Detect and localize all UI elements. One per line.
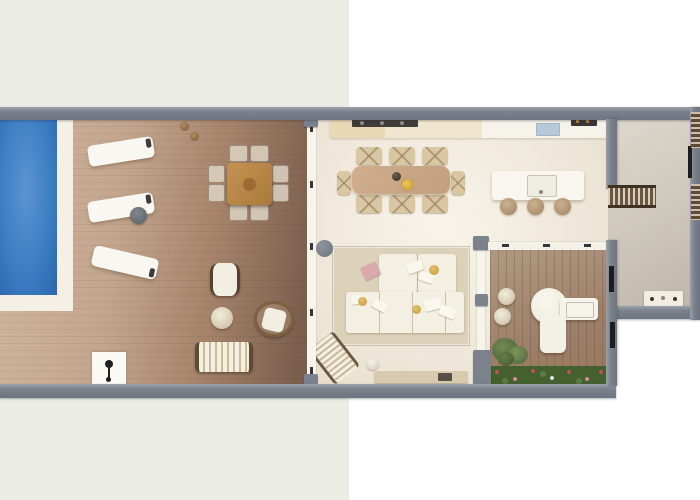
flower-hedge: [489, 366, 610, 386]
gold-pillow: [358, 297, 367, 306]
outdoor-chair: [250, 145, 269, 162]
island-faucet: [539, 190, 543, 194]
plant-pot: [190, 132, 199, 141]
glazing-tick: [310, 309, 313, 316]
veranda-desk-return: [560, 298, 598, 320]
appliance-dot: [576, 120, 579, 123]
hallway-console: [644, 291, 683, 307]
lounger-headrest: [145, 138, 151, 148]
terrace-armchair: [210, 263, 240, 296]
outdoor-chair: [208, 184, 225, 202]
swimming-pool: [0, 119, 57, 295]
slatted-rack: [608, 185, 656, 208]
media-console: [374, 371, 468, 383]
yellow-flowers: [402, 179, 413, 190]
gold-pillow: [412, 305, 421, 314]
wall-hallway-bottom: [612, 306, 700, 319]
bar-stool: [527, 198, 544, 215]
console-item: [673, 297, 677, 301]
lounger-headrest: [145, 194, 151, 204]
wicker-chair: [254, 301, 294, 337]
gold-pillow: [429, 265, 439, 275]
outdoor-chair: [208, 165, 225, 183]
plant-pot: [180, 122, 189, 131]
wall-shelf-niche: [691, 112, 700, 148]
glazing-tick: [310, 243, 313, 250]
dining-chair: [389, 147, 415, 165]
glazing-tick: [502, 244, 509, 247]
glazing-tick: [310, 367, 313, 374]
sofa-seam: [379, 292, 380, 333]
dining-chair: [422, 147, 448, 165]
hallway-floor: [608, 119, 690, 310]
table-centerpiece: [243, 178, 256, 191]
wicker-chair-cushion: [261, 307, 288, 334]
cooktop: [352, 119, 418, 127]
veranda-pouf: [498, 288, 515, 305]
side-table: [366, 357, 379, 370]
glazing-tick: [543, 244, 550, 247]
dining-chair: [356, 147, 382, 165]
glass-wall-terrace: [307, 119, 316, 384]
outdoor-chair: [250, 204, 269, 221]
veranda-window-band: [488, 242, 608, 250]
door-leaf: [610, 322, 615, 348]
wall-shelf-niche: [691, 184, 700, 220]
dining-chair: [389, 195, 415, 213]
outdoor-chair: [272, 165, 289, 183]
shower-icon-foot: [106, 377, 111, 382]
wall-post: [475, 294, 488, 306]
wall-post: [304, 119, 318, 127]
outdoor-shower-pad: [92, 352, 126, 385]
wall-post: [473, 350, 491, 385]
burner-dot: [360, 121, 364, 125]
structural-column: [316, 240, 333, 257]
shrub: [498, 352, 514, 366]
table-vase: [392, 172, 401, 181]
wall-veranda-right: [606, 240, 617, 386]
dining-chair: [356, 195, 382, 213]
striped-daybed: [195, 342, 253, 372]
bar-stool: [554, 198, 571, 215]
veranda-pouf: [494, 308, 511, 325]
dining-chair: [337, 171, 351, 195]
door-leaf: [609, 266, 614, 292]
console-item: [650, 297, 654, 301]
bar-stool: [500, 198, 517, 215]
wall-bottom: [0, 384, 616, 398]
console-equipment: [438, 373, 452, 381]
door-leaf: [688, 146, 692, 178]
wall-post: [473, 236, 489, 250]
outdoor-dining-table: [227, 163, 272, 205]
drinks-table: [130, 207, 147, 224]
terrace-pouf: [211, 307, 233, 329]
floor-plan-canvas: [0, 0, 700, 500]
glazing-tick: [584, 244, 591, 247]
lounger-headrest: [148, 268, 155, 278]
desk-seat: [566, 302, 594, 318]
outdoor-chair: [229, 145, 248, 162]
console-item: [661, 296, 665, 300]
counter-sink: [536, 123, 560, 136]
burner-dot: [400, 121, 404, 125]
appliance-dot: [586, 120, 589, 123]
outdoor-chair: [229, 204, 248, 221]
burner-dot: [380, 121, 384, 125]
glazing-tick: [310, 181, 313, 188]
dining-table: [352, 166, 450, 194]
wall-top: [0, 107, 700, 120]
wall-kitchen-hallway: [606, 119, 617, 189]
veranda-desk-extension: [540, 315, 566, 353]
outdoor-chair: [272, 184, 289, 202]
dining-chair: [451, 171, 465, 195]
dining-chair: [422, 195, 448, 213]
